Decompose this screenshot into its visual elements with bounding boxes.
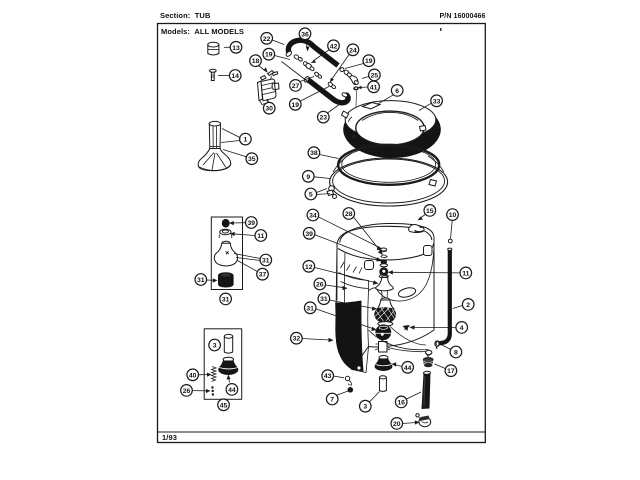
svg-text:1: 1	[244, 137, 248, 144]
svg-text:Section: TUB: Section: TUB	[160, 11, 211, 20]
svg-text:26: 26	[316, 282, 324, 289]
svg-text:35: 35	[248, 156, 256, 163]
svg-text:43: 43	[324, 373, 332, 380]
svg-text:34: 34	[309, 213, 317, 220]
svg-text:20: 20	[393, 421, 401, 428]
svg-text:19: 19	[265, 52, 273, 59]
svg-text:7: 7	[330, 397, 334, 404]
svg-text:25: 25	[371, 72, 379, 79]
svg-text:27: 27	[292, 83, 300, 90]
svg-text:1/93: 1/93	[162, 433, 177, 442]
svg-text:4: 4	[460, 325, 464, 332]
svg-text:2: 2	[466, 302, 470, 309]
svg-text:42: 42	[330, 43, 338, 50]
svg-text:11: 11	[257, 233, 264, 240]
svg-text:3: 3	[213, 343, 217, 350]
svg-text:44: 44	[228, 387, 236, 394]
svg-text:11: 11	[462, 270, 469, 277]
svg-text:41: 41	[370, 84, 378, 91]
svg-text:30: 30	[265, 106, 273, 113]
svg-text:18: 18	[252, 58, 260, 65]
svg-text:22: 22	[263, 36, 271, 43]
svg-text:23: 23	[320, 115, 328, 122]
svg-text:10: 10	[449, 212, 457, 219]
svg-text:39: 39	[248, 220, 256, 227]
svg-text:12: 12	[305, 264, 313, 271]
svg-text:19: 19	[292, 102, 300, 109]
svg-text:31: 31	[222, 296, 230, 303]
svg-text:9: 9	[306, 174, 310, 181]
svg-text:40: 40	[189, 372, 197, 379]
svg-text:THT: THT	[222, 275, 230, 279]
svg-text:38: 38	[310, 150, 318, 157]
svg-text:13: 13	[232, 45, 240, 52]
svg-text:19: 19	[365, 58, 373, 65]
svg-text:17: 17	[447, 368, 455, 375]
svg-text:39: 39	[305, 231, 313, 238]
svg-text:14: 14	[231, 73, 239, 80]
svg-text:P/N 16000466: P/N 16000466	[440, 11, 486, 20]
svg-text:15: 15	[426, 208, 434, 215]
svg-text:6: 6	[395, 88, 399, 95]
svg-text:8: 8	[454, 350, 458, 357]
svg-text:16: 16	[397, 399, 405, 406]
svg-text:24: 24	[349, 47, 357, 54]
svg-text:32: 32	[293, 336, 301, 343]
svg-text:33: 33	[433, 98, 441, 105]
svg-text:28: 28	[345, 211, 353, 218]
svg-text:31: 31	[262, 258, 270, 265]
svg-text:31: 31	[197, 277, 205, 284]
svg-text:5: 5	[309, 192, 313, 199]
svg-text:31: 31	[306, 305, 314, 312]
svg-text:3: 3	[363, 404, 367, 411]
svg-text:37: 37	[259, 272, 267, 279]
svg-text:Models: ALL MODELS: Models: ALL MODELS	[161, 27, 244, 36]
svg-text:26: 26	[183, 388, 191, 395]
svg-text:36: 36	[301, 31, 309, 38]
svg-text:44: 44	[404, 365, 412, 372]
svg-text:31: 31	[320, 296, 328, 303]
svg-text:45: 45	[220, 402, 228, 409]
